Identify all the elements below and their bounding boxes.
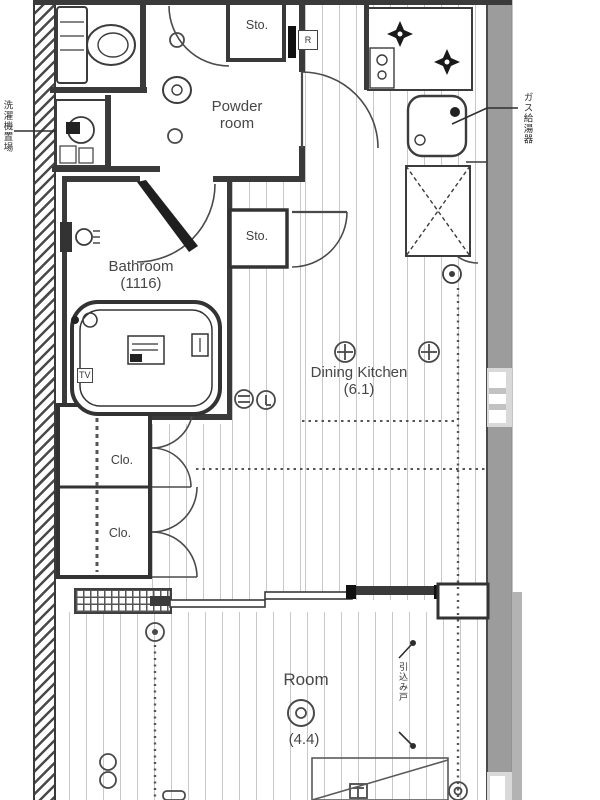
- kitchen-sink-icon: [408, 96, 487, 162]
- washer-pan-icon: [56, 100, 106, 166]
- washer-space-note: 洗濯機置場: [2, 100, 12, 153]
- exterior-wall-gray: [487, 0, 522, 800]
- storage-top-label: Sto.: [234, 18, 280, 32]
- duct-icon: [288, 26, 296, 58]
- furniture-outline: [312, 758, 448, 800]
- closet-boxes: [58, 405, 150, 577]
- closet-upper-label: Clo.: [100, 453, 144, 467]
- partition-wall: [170, 584, 488, 618]
- room-label-dining-kitchen: Dining Kitchen (6.1): [288, 364, 430, 399]
- toilet-icon: [57, 7, 135, 83]
- room-label-bathroom: Bathroom (1116): [99, 258, 183, 293]
- room-label-powder: Powder room: [197, 98, 277, 133]
- room-label-room: Room: [266, 670, 346, 690]
- washbasin-icon: [163, 77, 191, 103]
- bathroom-door-leaf: [137, 180, 198, 252]
- window-bottom-icon: [487, 772, 512, 800]
- kitchen-counter-icon: [368, 8, 472, 90]
- refrigerator-space-icon: [406, 166, 470, 283]
- room-label-room-size: (4.4): [266, 731, 342, 748]
- duct-label: R: [298, 30, 318, 50]
- bathtub-tv-label: TV: [77, 368, 93, 383]
- downlight-icon: [168, 129, 182, 143]
- closet-doors: [152, 407, 197, 577]
- bathtub-icon: [72, 302, 220, 414]
- closet-lower-label: Clo.: [98, 526, 142, 540]
- window-icon: [487, 368, 512, 427]
- floorplan-canvas: Powder room Bathroom (1116) Dining Kitch…: [0, 0, 600, 800]
- sliding-partition-note: 引込み戸: [398, 662, 407, 702]
- water-heater-note: ガス給湯器: [522, 92, 532, 145]
- storage-mid-label: Sto.: [234, 229, 280, 243]
